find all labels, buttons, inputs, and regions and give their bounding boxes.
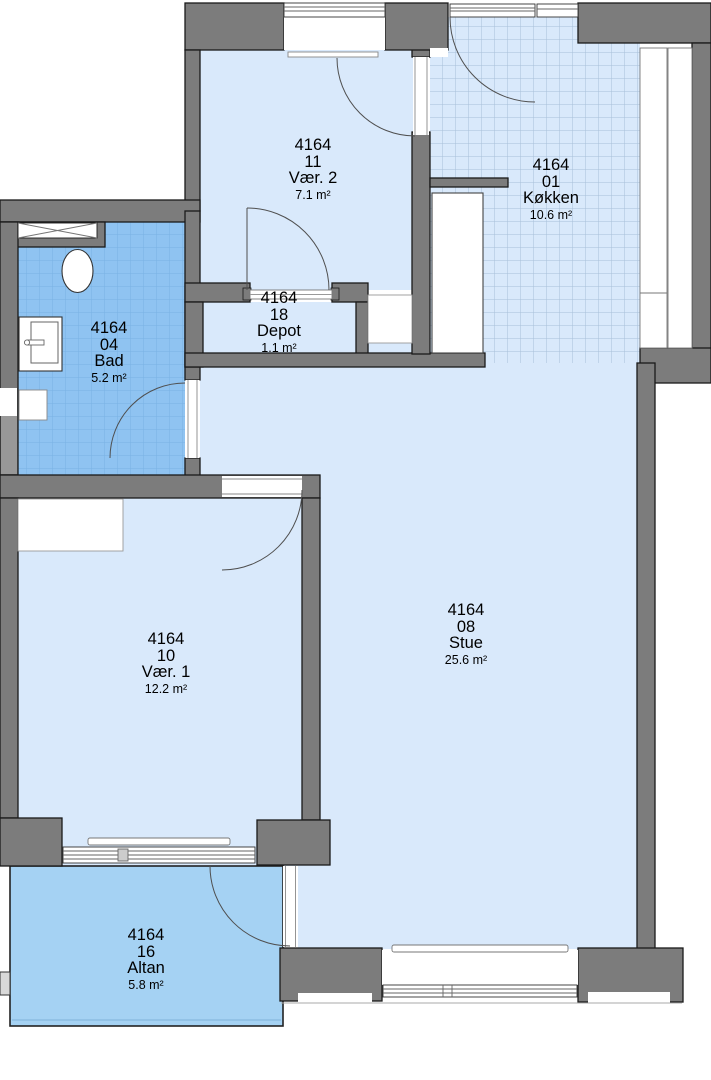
doorway-vaer2-koekken <box>413 57 429 135</box>
wall-bad-top <box>0 200 200 222</box>
room-number: 18 <box>257 306 301 323</box>
radiator-vaer1 <box>88 838 230 845</box>
wall-left-light-segment <box>1 416 17 474</box>
wall-mid-horizontal <box>185 353 485 367</box>
room-name: Vær. 2 <box>289 170 338 187</box>
wall-right-outer-koekken <box>692 43 711 365</box>
window-koekken-top <box>450 4 535 17</box>
room-number: 10 <box>142 647 191 664</box>
koekken-tall-unit <box>432 193 483 353</box>
doorway-bad <box>186 380 200 458</box>
room-name: Bad <box>91 353 128 370</box>
room-label-bad: 4164 04 Bad 5.2 m² <box>91 320 128 385</box>
wall-left-bottom-block <box>0 818 62 866</box>
entrance-door <box>537 4 578 17</box>
window-stue-bottom <box>382 950 578 997</box>
room-name: Altan <box>127 960 165 977</box>
bad-appliance <box>19 390 47 420</box>
wall-notch-bottom-left <box>298 993 372 1003</box>
vaer1-closet <box>18 499 123 551</box>
room-code: 4164 <box>257 290 301 307</box>
wall-notch-top-mid <box>430 48 448 57</box>
room-label-vaer1: 4164 10 Vær. 1 12.2 m² <box>142 631 191 696</box>
room-area: 7.1 m² <box>289 187 338 201</box>
altan-wall-stub <box>0 972 10 995</box>
room-label-altan: 4164 16 Altan 5.8 m² <box>127 927 165 992</box>
room-name: Vær. 1 <box>142 664 191 681</box>
room-name: Stue <box>445 635 487 652</box>
room-code: 4164 <box>289 137 338 154</box>
wall-stue-right <box>637 363 655 957</box>
room-code: 4164 <box>445 602 487 619</box>
wall-vaer2-left <box>185 50 200 211</box>
room-code: 4164 <box>127 927 165 944</box>
wall-vaer1-bottom-right-block <box>257 820 330 865</box>
room-name: Depot <box>257 323 301 340</box>
vaer2-closet-rail <box>288 52 378 57</box>
wall-depot-right <box>356 302 368 354</box>
wall-top-mid-block <box>385 3 448 50</box>
room-label-stue: 4164 08 Stue 25.6 m² <box>445 602 487 667</box>
room-number: 01 <box>523 173 579 190</box>
floor-plan-drawing <box>0 0 711 1080</box>
room-number: 16 <box>127 943 165 960</box>
wall-notch-bottom-right <box>588 992 670 1003</box>
room-area: 25.6 m² <box>445 652 487 666</box>
wall-left-outer-vaer1 <box>0 498 18 818</box>
room-number: 04 <box>91 336 128 353</box>
room-area: 12.2 m² <box>142 681 191 695</box>
wall-niche-bad-left <box>0 388 17 416</box>
room-number: 11 <box>289 153 338 170</box>
window-vaer1-altan <box>63 847 255 863</box>
doorway-vaer1 <box>222 476 302 497</box>
radiator-stue <box>392 945 568 952</box>
wall-bad-right-lower <box>185 458 200 477</box>
room-code: 4164 <box>142 631 191 648</box>
window-vaer2-top <box>284 3 385 50</box>
room-code: 4164 <box>523 157 579 174</box>
wall-vaer2-bottom-chunk <box>185 283 250 302</box>
koekken-counter <box>640 48 692 348</box>
wall-koekken-stub <box>430 178 508 187</box>
wall-vaer2-koekken-lower <box>412 132 430 354</box>
room-name: Køkken <box>523 190 579 207</box>
hall-niche <box>368 295 412 343</box>
floor-plan-page: 4164 11 Vær. 2 7.1 m² 4164 01 Køkken 10.… <box>0 0 711 1080</box>
room-label-vaer2: 4164 11 Vær. 2 7.1 m² <box>289 137 338 202</box>
doorway-altan <box>283 866 298 947</box>
wall-top-right-block <box>578 3 711 43</box>
room-label-koekken: 4164 01 Køkken 10.6 m² <box>523 157 579 222</box>
sink-unit <box>19 317 62 371</box>
wall-top-left-block <box>185 3 284 50</box>
room-number: 08 <box>445 618 487 635</box>
room-area: 10.6 m² <box>523 207 579 221</box>
shaft-box <box>18 223 97 238</box>
wall-vaer1-right <box>302 498 320 820</box>
room-label-depot: 4164 18 Depot 1.1 m² <box>257 290 301 355</box>
room-area: 5.2 m² <box>91 370 128 384</box>
toilet <box>62 250 93 293</box>
room-area: 1.1 m² <box>257 340 301 354</box>
room-code: 4164 <box>91 320 128 337</box>
room-area: 5.8 m² <box>127 977 165 991</box>
